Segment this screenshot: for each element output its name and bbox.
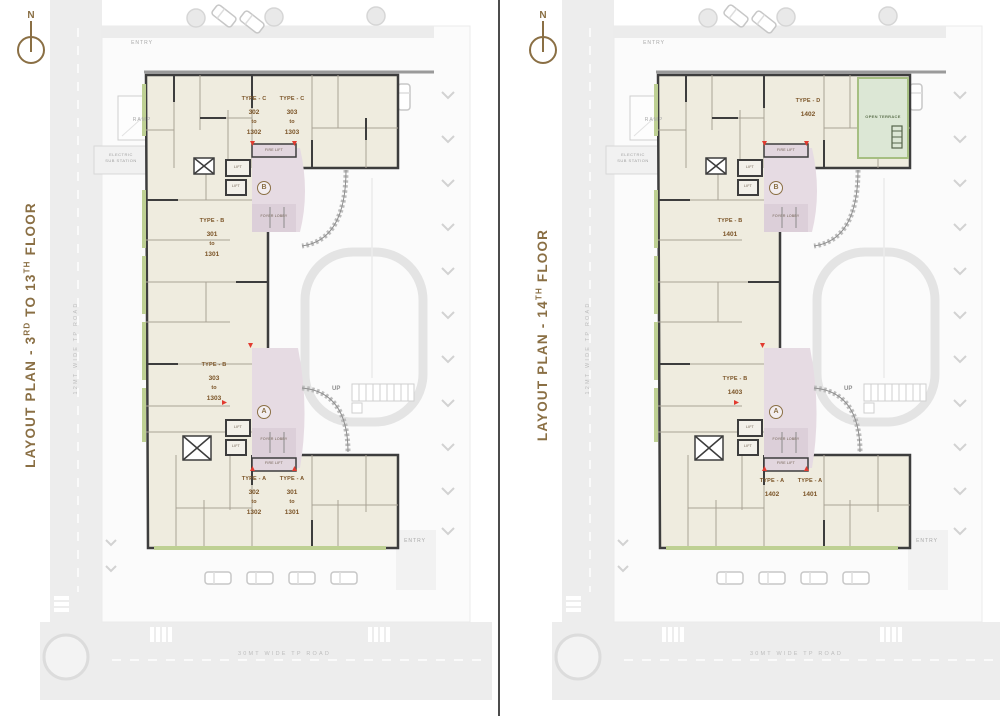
plan-3rd-to-13th-floor: N LAYOUT PLAN - 3RD TO 13TH FLOOR ENTRY …: [0, 0, 497, 716]
unit-to: to: [266, 118, 318, 127]
lift-label: LIFT: [738, 444, 758, 448]
road-left-label: 12MT WIDE TP ROAD: [585, 301, 591, 394]
unit-to: to: [186, 240, 238, 249]
lift-label: LIFT: [226, 425, 250, 429]
lift-label: LIFT: [738, 425, 762, 429]
unit-number: 1402: [782, 109, 834, 120]
title-segment: FLOOR: [23, 202, 38, 260]
substation-label: ELECTRIC SUB STATION: [94, 152, 148, 164]
compass-north-label: N: [27, 10, 34, 21]
unit-number: 1301: [186, 249, 238, 260]
unit-number: 301: [266, 487, 318, 498]
unit-label: TYPE - C 303 to 1303: [266, 96, 318, 138]
title-sup: RD: [22, 322, 31, 336]
unit-type: TYPE - B: [186, 218, 238, 224]
unit-number: 1401: [784, 489, 836, 500]
lift-label: LIFT: [226, 444, 246, 448]
lift-label: LIFT: [738, 184, 758, 188]
substation-line2: SUB STATION: [606, 158, 660, 164]
unit-to: to: [266, 498, 318, 507]
road-left-label: 12MT WIDE TP ROAD: [73, 301, 79, 394]
foyer-label: FOYER LOBBY: [762, 437, 810, 441]
stair-up-label: UP: [332, 386, 340, 392]
compass: N: [522, 4, 564, 68]
unit-label: TYPE - D 1402: [782, 98, 834, 120]
compass-north-label: N: [539, 10, 546, 21]
title-sup: TH: [534, 287, 543, 300]
unit-label: TYPE - A 301 to 1301: [266, 476, 318, 518]
unit-to: to: [188, 384, 240, 393]
unit-number: 1403: [709, 387, 761, 398]
unit-number: 301: [186, 229, 238, 240]
unit-label: TYPE - A 1401: [784, 478, 836, 500]
page-title: LAYOUT PLAN - 3RD TO 13TH FLOOR: [22, 202, 38, 468]
panel-divider: [498, 0, 500, 716]
title-segment: LAYOUT PLAN - 14: [535, 300, 550, 441]
unit-label: TYPE - B 303 to 1303: [188, 362, 240, 404]
foyer-label: FOYER LOBBY: [250, 437, 298, 441]
substation-line2: SUB STATION: [94, 158, 148, 164]
road-bottom-label: 30MT WIDE TP ROAD: [238, 651, 331, 657]
title-segment: LAYOUT PLAN - 3: [23, 336, 38, 468]
stair-up-label: UP: [844, 386, 852, 392]
lift-label: LIFT: [738, 165, 762, 169]
fire-lift-label: FIRE LIFT: [764, 461, 808, 465]
unit-label: TYPE - B 1401: [704, 218, 756, 240]
compass: N: [10, 4, 52, 68]
unit-number: 1301: [266, 507, 318, 518]
wing-letter-badge: A: [769, 405, 783, 419]
page-title: LAYOUT PLAN - 14TH FLOOR: [534, 229, 550, 441]
unit-type: TYPE - B: [188, 362, 240, 368]
road-bottom-label: 30MT WIDE TP ROAD: [750, 651, 843, 657]
wing-letter-badge: B: [257, 181, 271, 195]
fire-lift-label: FIRE LIFT: [252, 461, 296, 465]
unit-number: 1303: [266, 127, 318, 138]
plan-14th-floor: N LAYOUT PLAN - 14TH FLOOR ENTRY RAMP EL…: [512, 0, 1000, 716]
ramp-label: RAMP: [118, 117, 166, 123]
entry-top-label: ENTRY: [116, 40, 168, 46]
entry-top-label: ENTRY: [628, 40, 680, 46]
unit-number: 1303: [188, 393, 240, 404]
lift-label: LIFT: [226, 184, 246, 188]
unit-type: TYPE - B: [709, 376, 761, 382]
unit-type: TYPE - C: [266, 96, 318, 102]
entry-bottom-label: ENTRY: [390, 538, 440, 544]
unit-label: TYPE - B 1403: [709, 376, 761, 398]
title-sup: TH: [22, 260, 31, 273]
wing-letter-badge: B: [769, 181, 783, 195]
unit-type: TYPE - A: [266, 476, 318, 482]
open-terrace-label: OPEN TERRACE: [856, 114, 910, 119]
substation-label: ELECTRIC SUB STATION: [606, 152, 660, 164]
unit-number: 303: [266, 107, 318, 118]
lift-label: LIFT: [226, 165, 250, 169]
entry-bottom-label: ENTRY: [902, 538, 952, 544]
unit-number: 303: [188, 373, 240, 384]
title-segment: TO 13: [23, 273, 38, 321]
unit-type: TYPE - D: [782, 98, 834, 104]
foyer-label: FOYER LOBBY: [762, 214, 810, 218]
ramp-label: RAMP: [630, 117, 678, 123]
unit-type: TYPE - B: [704, 218, 756, 224]
unit-type: TYPE - A: [784, 478, 836, 484]
wing-letter-badge: A: [257, 405, 271, 419]
title-segment: FLOOR: [535, 229, 550, 287]
foyer-label: FOYER LOBBY: [250, 214, 298, 218]
fire-lift-label: FIRE LIFT: [252, 148, 296, 152]
unit-number: 1401: [704, 229, 756, 240]
unit-label: TYPE - B 301 to 1301: [186, 218, 238, 260]
fire-lift-label: FIRE LIFT: [764, 148, 808, 152]
